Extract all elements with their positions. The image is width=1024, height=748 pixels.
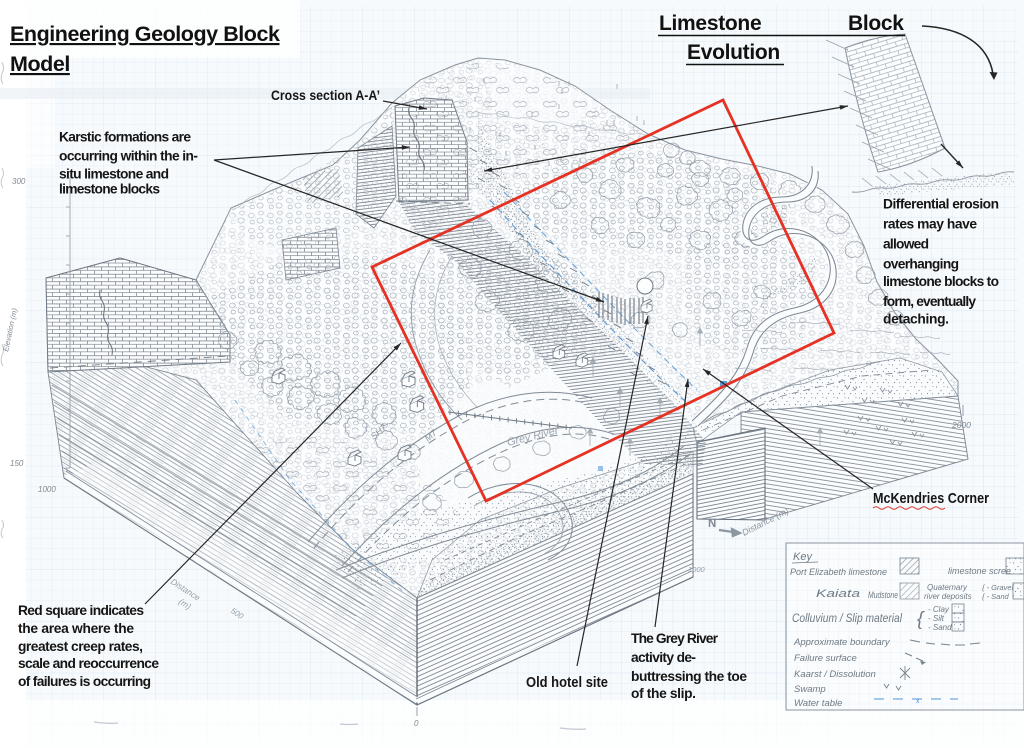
svg-text:Differential erosion: Differential erosion bbox=[883, 197, 999, 212]
svg-text:- Clay: - Clay bbox=[928, 605, 950, 614]
svg-text:form, eventually: form, eventually bbox=[883, 294, 976, 309]
svg-text:rates may have: rates may have bbox=[883, 217, 977, 232]
svg-text:Colluvium / Slip material: Colluvium / Slip material bbox=[792, 611, 902, 625]
svg-text:Mudstone: Mudstone bbox=[868, 590, 898, 601]
svg-text:detaching.: detaching. bbox=[883, 312, 949, 327]
svg-text:0: 0 bbox=[414, 719, 419, 728]
svg-text:activity de-: activity de- bbox=[631, 650, 696, 665]
svg-text:situ limestone and: situ limestone and bbox=[59, 167, 169, 182]
svg-text:2000: 2000 bbox=[951, 420, 971, 430]
svg-text:occurring within the in-: occurring within the in- bbox=[59, 149, 198, 164]
svg-text:Karstic formations are: Karstic formations are bbox=[59, 130, 191, 145]
svg-text:buttressing the toe: buttressing the toe bbox=[631, 669, 747, 684]
svg-text:1000: 1000 bbox=[688, 565, 706, 574]
svg-text:Kaiata: Kaiata bbox=[816, 588, 860, 600]
svg-text:{ - Sand: { - Sand bbox=[982, 592, 1010, 601]
svg-text:{ - Gravel: { - Gravel bbox=[982, 583, 1014, 592]
svg-text:Model: Model bbox=[10, 52, 70, 76]
svg-text:150: 150 bbox=[10, 459, 24, 468]
svg-text:Swamp: Swamp bbox=[794, 684, 826, 695]
svg-text:Limestone: Limestone bbox=[659, 12, 761, 35]
svg-text:limestone blocks: limestone blocks bbox=[59, 182, 160, 197]
svg-text:the area where the: the area where the bbox=[18, 621, 134, 636]
svg-text:N: N bbox=[708, 518, 716, 530]
svg-text:Old hotel site: Old hotel site bbox=[526, 675, 608, 691]
svg-text:limestone blocks to: limestone blocks to bbox=[883, 274, 999, 289]
svg-text:greatest creep rates,: greatest creep rates, bbox=[18, 639, 143, 654]
svg-text:Kaarst / Dissolution: Kaarst / Dissolution bbox=[794, 669, 876, 680]
svg-text:1000: 1000 bbox=[38, 485, 56, 494]
svg-text:x: x bbox=[916, 698, 920, 705]
svg-text:allowed: allowed bbox=[883, 237, 929, 252]
svg-text:overhanging: overhanging bbox=[883, 257, 959, 272]
svg-text:Approximate boundary: Approximate boundary bbox=[793, 637, 891, 648]
svg-text:limestone scree: limestone scree bbox=[948, 566, 1011, 576]
svg-text:Engineering Geology Block: Engineering Geology Block bbox=[10, 22, 280, 46]
svg-text:McKendries Corner: McKendries Corner bbox=[873, 490, 989, 507]
svg-text:Block: Block bbox=[848, 12, 904, 35]
svg-text:Port Elizabeth limestone: Port Elizabeth limestone bbox=[790, 567, 887, 577]
svg-text:Cross section A-A’: Cross section A-A’ bbox=[271, 88, 380, 103]
svg-text:The Grey River: The Grey River bbox=[631, 631, 719, 646]
svg-text:of failures is occurring: of failures is occurring bbox=[18, 674, 151, 689]
svg-text:Red square indicates: Red square indicates bbox=[18, 603, 144, 618]
svg-text:- Silt: - Silt bbox=[928, 614, 945, 623]
svg-text:Water table: Water table bbox=[794, 698, 842, 709]
svg-text:of the slip.: of the slip. bbox=[631, 686, 696, 701]
svg-text:Failure surface: Failure surface bbox=[794, 653, 857, 664]
svg-text:- Sand: - Sand bbox=[928, 623, 952, 632]
svg-text:Evolution: Evolution bbox=[687, 41, 780, 64]
svg-text:Quaternary: Quaternary bbox=[927, 583, 968, 592]
svg-text:river deposits: river deposits bbox=[924, 592, 972, 601]
svg-text:Key: Key bbox=[793, 551, 813, 563]
svg-text:scale and reoccurrence: scale and reoccurrence bbox=[18, 656, 159, 671]
svg-text:300: 300 bbox=[12, 177, 26, 186]
